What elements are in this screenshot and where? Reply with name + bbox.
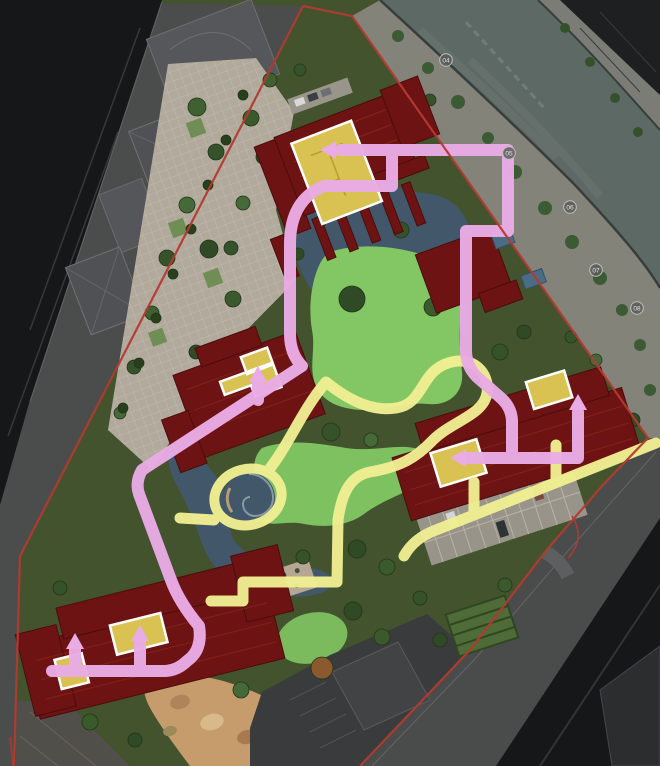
map-shape [422, 62, 434, 74]
river-marker-label: 08 [633, 305, 641, 312]
river-marker: 04 [440, 54, 453, 67]
river-marker-label: 05 [505, 150, 513, 157]
map-shape [344, 602, 362, 620]
map-shape [565, 235, 579, 249]
map-shape [560, 23, 570, 33]
map-shape [392, 30, 404, 42]
map-shape [208, 144, 224, 160]
map-shape [134, 358, 144, 368]
map-shape [294, 64, 306, 76]
map-shape [633, 127, 643, 137]
river-marker-label: 07 [592, 267, 600, 274]
map-shape [644, 384, 656, 396]
river-marker-label: 04 [442, 57, 450, 64]
map-shape [451, 95, 465, 109]
map-shape [538, 201, 552, 215]
map-shape [200, 240, 218, 258]
site-plan-svg: 0405060708 [0, 0, 660, 766]
map-shape [179, 197, 195, 213]
map-shape [339, 286, 365, 312]
map-shape [180, 518, 214, 520]
map-shape [118, 403, 128, 413]
map-shape [517, 325, 531, 339]
river-marker: 07 [590, 264, 603, 277]
map-shape [168, 269, 178, 279]
map-shape [233, 682, 249, 698]
map-shape [236, 196, 250, 210]
river-marker: 05 [503, 147, 516, 160]
map-shape [238, 90, 248, 100]
river-marker-label: 06 [566, 204, 574, 211]
map-shape [492, 344, 508, 360]
map-shape [128, 733, 142, 747]
map-shape [224, 241, 238, 255]
map-shape [82, 714, 98, 730]
map-shape [379, 559, 395, 575]
map-shape [348, 540, 366, 558]
map-shape [498, 578, 512, 592]
map-shape [296, 550, 310, 564]
map-shape [322, 423, 340, 441]
river-marker: 08 [631, 302, 644, 315]
river-marker: 06 [564, 201, 577, 214]
map-shape [610, 93, 620, 103]
map-shape [413, 591, 427, 605]
site-plan-image: 0405060708 [0, 0, 660, 766]
map-shape [151, 313, 161, 323]
map-shape [221, 135, 231, 145]
map-shape [188, 98, 206, 116]
map-shape [482, 132, 494, 144]
map-shape [311, 657, 333, 679]
map-shape [374, 629, 390, 645]
map-shape [433, 633, 447, 647]
map-shape [585, 57, 595, 67]
map-shape [634, 339, 646, 351]
map-shape [364, 433, 378, 447]
map-shape [616, 304, 628, 316]
map-shape [225, 291, 241, 307]
map-shape [53, 581, 67, 595]
